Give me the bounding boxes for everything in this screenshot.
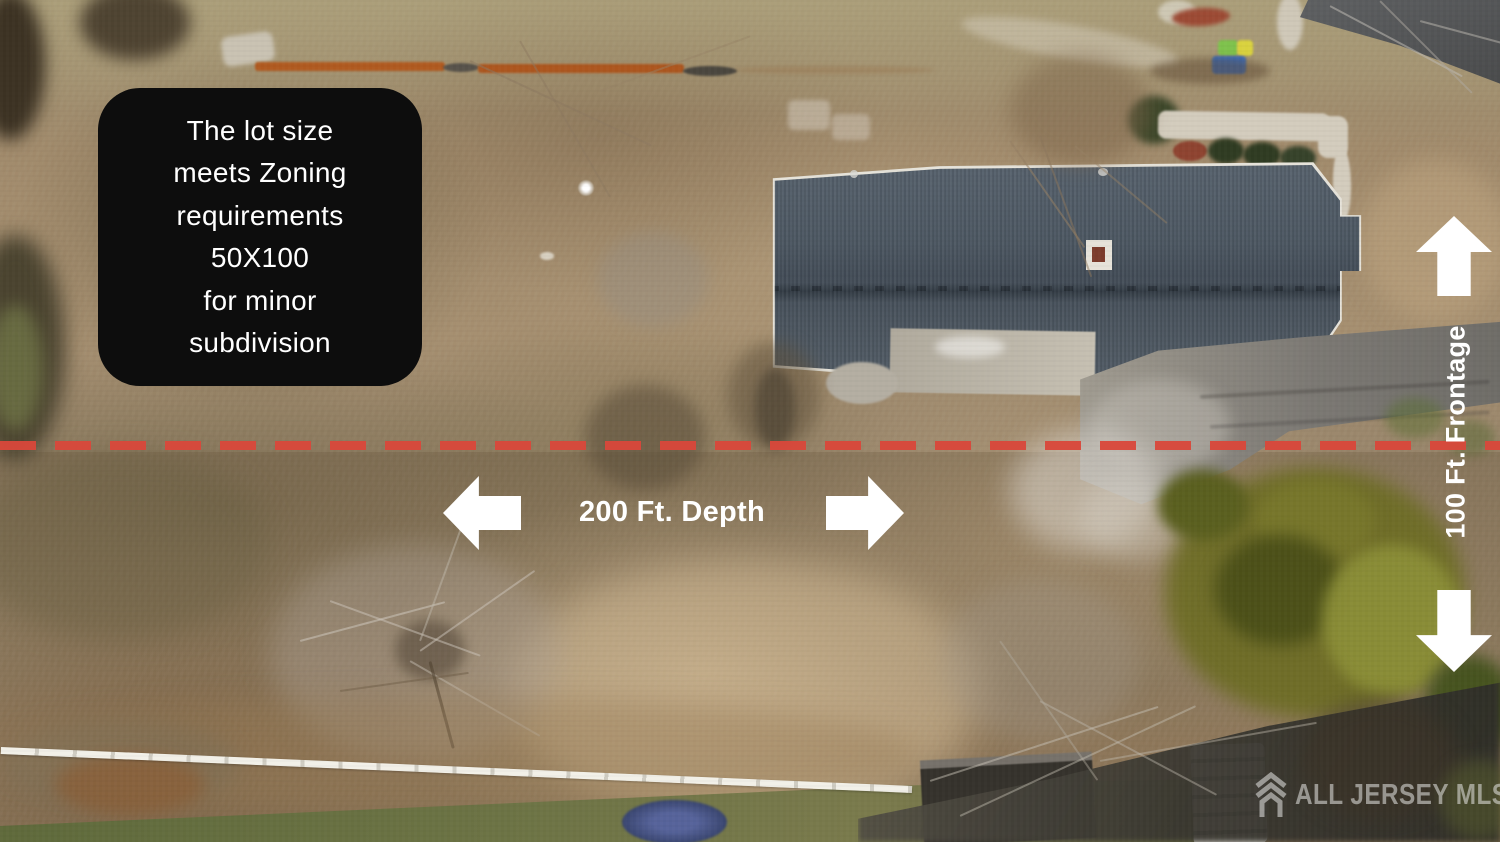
- zoning-note-box: The lot size meets Zoning requirements 5…: [98, 88, 422, 386]
- roof-vent: [850, 170, 858, 178]
- zoning-note-line: subdivision: [189, 322, 331, 365]
- watermark-text: ALL JERSEY MLS: [1295, 779, 1500, 812]
- toy-green: [1218, 40, 1238, 56]
- bare-tree-haze: [940, 580, 1140, 740]
- fence-faded-segment: [735, 66, 935, 74]
- walkway: [1158, 111, 1330, 142]
- chimney-flue: [1092, 247, 1105, 262]
- mulch-bed: [1150, 58, 1270, 84]
- patio-stone: [832, 114, 870, 140]
- toy-yellow: [1237, 40, 1253, 56]
- trampoline: [622, 800, 727, 842]
- rust-ground-patch: [55, 755, 205, 815]
- patio-stone: [788, 100, 830, 130]
- concrete-pad: [826, 362, 898, 404]
- white-flower-ring: [578, 180, 594, 196]
- white-debris: [540, 252, 554, 260]
- rust-fence-segment: [255, 62, 445, 71]
- fence-gap: [443, 63, 479, 72]
- weeds: [1385, 398, 1445, 438]
- zoning-note-line: 50X100: [211, 237, 309, 280]
- zoning-note-line: The lot size: [187, 110, 334, 153]
- aerial-lot-photo: The lot size meets Zoning requirements 5…: [0, 0, 1500, 842]
- brick-planter: [1173, 141, 1207, 161]
- frontage-measurement-label: 100 Ft. Frontage: [1441, 325, 1472, 538]
- evergreen-small: [1158, 470, 1248, 540]
- house-logo-icon: [1254, 772, 1288, 818]
- branchy-tree: [585, 385, 705, 490]
- zoning-note-line: meets Zoning: [173, 152, 346, 195]
- zoning-note-line: for minor: [203, 280, 316, 323]
- tree-trunk-shadow: [755, 368, 795, 448]
- shrub-ball: [1208, 138, 1244, 164]
- chimney: [1086, 240, 1112, 270]
- zoning-note-line: requirements: [176, 195, 343, 238]
- depth-measurement-label: 200 Ft. Depth: [522, 496, 822, 529]
- watermark: ALL JERSEY MLS: [1254, 772, 1500, 818]
- patio-smudge: [935, 336, 1005, 358]
- fence-dark-segment: [683, 66, 737, 76]
- lot-boundary-dashed-line: [0, 441, 1500, 450]
- bare-tree-gray: [598, 232, 708, 327]
